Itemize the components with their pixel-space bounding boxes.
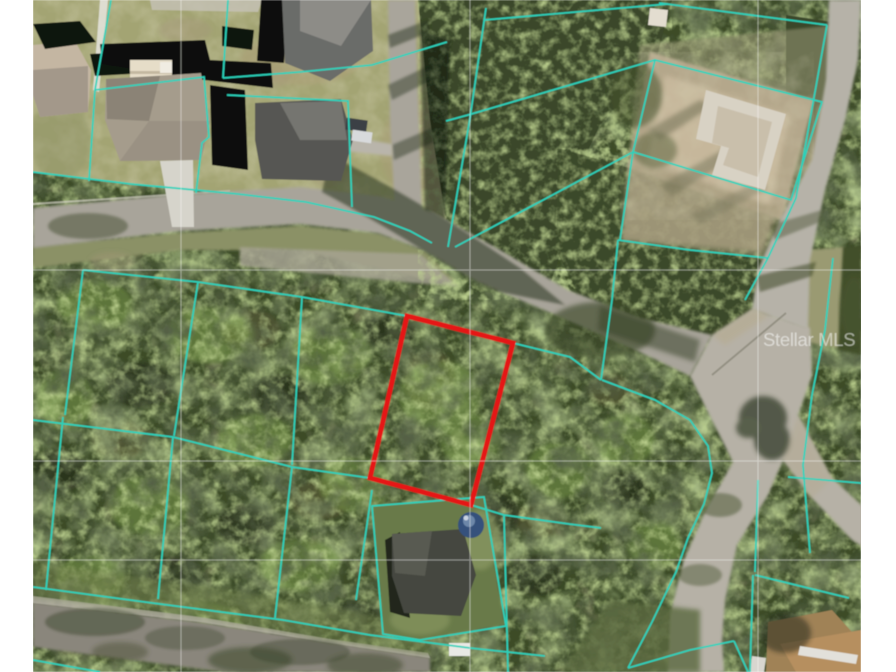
svg-text:Stellar MLS: Stellar MLS bbox=[763, 329, 855, 350]
